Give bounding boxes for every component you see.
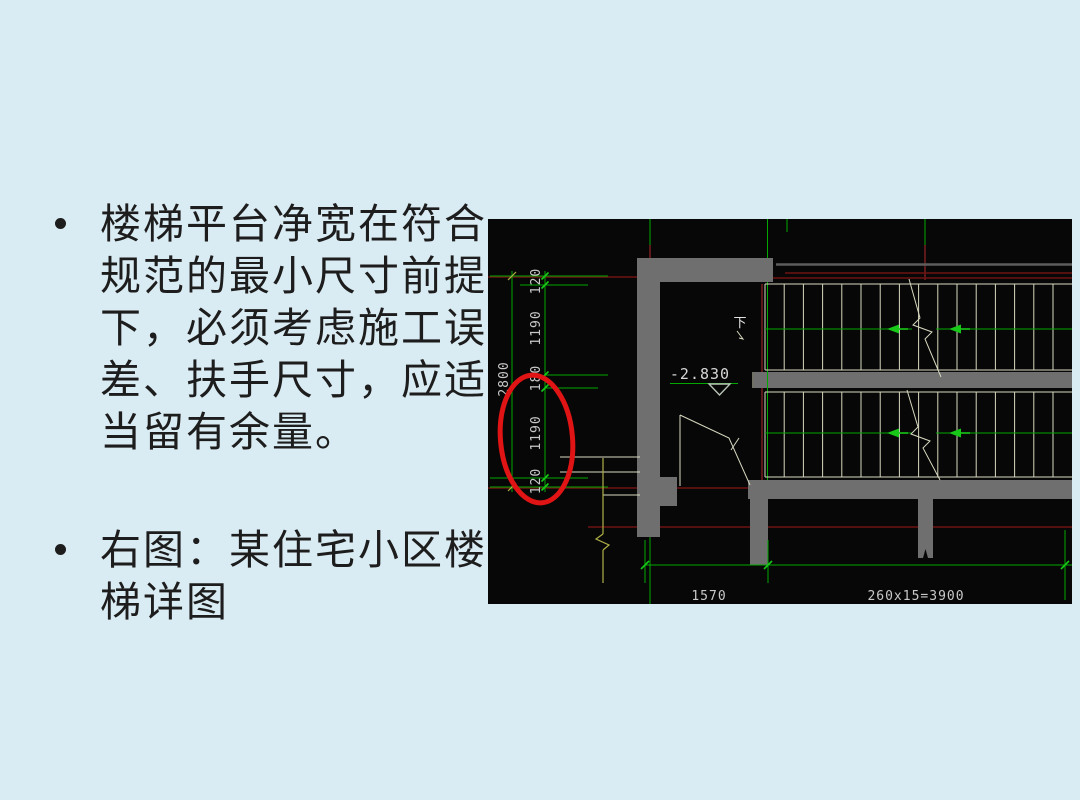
bullet-1-line: 当留有余量。 [100, 406, 487, 458]
wall-pier-left [750, 480, 768, 565]
dim-text: 120 [529, 268, 544, 294]
mid-landing-band [754, 372, 1072, 388]
down-text: 下 [733, 315, 746, 330]
dim-text: 1570 [691, 589, 726, 604]
bullet-1-text: 楼梯平台净宽在符合 规范的最小尺寸前提 下，必须考虑施工误 差、扶手尺寸，应适 … [100, 198, 487, 458]
bottom-landing-band [748, 480, 1072, 499]
level-text: -2.830 [670, 365, 730, 383]
dim-text: 260x15=3900 [867, 589, 964, 604]
cad-stair-detail-drawing: 120 1190 180 1190 120 2800 1570 260x15=3… [488, 219, 1072, 604]
bullet-2-line: 梯详图 [100, 576, 487, 628]
slide-bottom-margin [0, 800, 1080, 811]
dim-text: 120 [529, 468, 544, 494]
presentation-slide: 楼梯平台净宽在符合 规范的最小尺寸前提 下，必须考虑施工误 差、扶手尺寸，应适 … [0, 0, 1080, 800]
bullet-2-text: 右图：某住宅小区楼 梯详图 [100, 524, 487, 628]
dim-text: 1190 [529, 415, 544, 450]
bullet-item-1: 楼梯平台净宽在符合 规范的最小尺寸前提 下，必须考虑施工误 差、扶手尺寸，应适 … [55, 198, 487, 458]
bullet-1-line: 规范的最小尺寸前提 [100, 250, 487, 302]
cad-drawing-svg: 120 1190 180 1190 120 2800 1570 260x15=3… [488, 219, 1072, 604]
bullet-icon [55, 544, 66, 555]
bullet-item-2: 右图：某住宅小区楼 梯详图 [55, 524, 487, 628]
bullet-1-line: 下，必须考虑施工误 [100, 302, 487, 354]
bullet-1-line: 楼梯平台净宽在符合 [100, 198, 487, 250]
bullet-icon [55, 218, 66, 229]
bullet-2-line: 右图：某住宅小区楼 [100, 524, 487, 576]
wall-left-stub [637, 477, 677, 506]
bullet-1-line: 差、扶手尺寸，应适 [100, 354, 487, 406]
dim-text: 1190 [529, 310, 544, 345]
